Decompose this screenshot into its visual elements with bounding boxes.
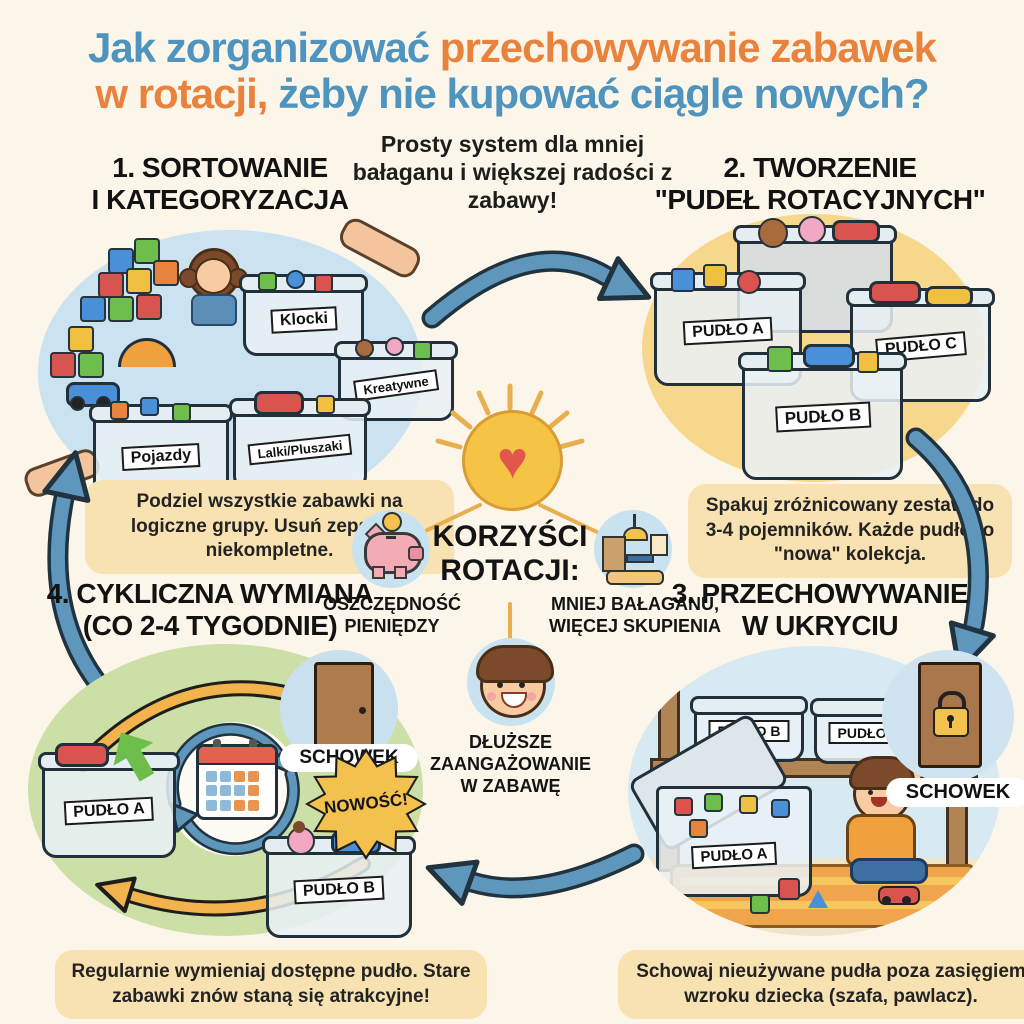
- calendar-cell: [248, 800, 259, 811]
- bin-label: Lalki/Pluszaki: [248, 434, 353, 466]
- cycle-bin-b: PUDŁO B: [266, 840, 412, 938]
- car-wheel-icon: [70, 396, 85, 411]
- bin-label: PUDŁO A: [64, 797, 155, 826]
- toy-block-icon: [286, 270, 305, 289]
- toy-block-icon: [737, 270, 761, 294]
- cheek-icon: [527, 692, 536, 701]
- step2-header-line2: "PUDEŁ ROTACYJNYCH": [645, 184, 995, 216]
- boy-legs-icon: [850, 858, 928, 884]
- new-badge-label: NOWOŚĆ!: [323, 790, 409, 819]
- benefit-label-engagement: DŁUŻSZE ZAANGAŻOWANIE W ZABAWĘ: [428, 732, 593, 798]
- teddy-icon: [758, 218, 788, 248]
- doll-icon: [385, 337, 404, 356]
- calendar-cell: [206, 785, 217, 796]
- title-part-orange2: w rotacji,: [95, 70, 267, 117]
- coin-slot-icon: [386, 536, 396, 539]
- cycle-bin-a: PUDŁO A: [42, 756, 176, 858]
- lamp-shade-icon: [623, 527, 648, 541]
- teddy-icon: [355, 339, 374, 358]
- step2-header: 2. TWORZENIE "PUDEŁ ROTACYJNYCH": [645, 152, 995, 217]
- toy-block-icon: [80, 296, 106, 322]
- toy-block-icon: [857, 351, 879, 373]
- bin-label: PUDŁO B: [293, 876, 384, 905]
- calendar-cell: [220, 771, 231, 782]
- calendar-cell: [220, 785, 231, 796]
- infographic-toy-rotation: Jak zorganizować przechowywanie zabawek …: [0, 0, 1024, 1024]
- toy-block-icon: [98, 272, 124, 298]
- toy-block-icon: [172, 403, 191, 422]
- girl-face-icon: [195, 258, 232, 294]
- toy-block-icon: [750, 894, 770, 914]
- arrow-step1-to-step2-icon: [420, 226, 650, 336]
- calendar-cell: [248, 771, 259, 782]
- toy-car-icon: [803, 344, 855, 368]
- toy-block-icon: [778, 878, 800, 900]
- bin-rim: [690, 696, 808, 715]
- toy-car-icon: [925, 286, 973, 307]
- page-title-line2: w rotacji, żeby nie kupować ciągle nowyc…: [0, 70, 1024, 118]
- padlock-icon: [933, 707, 969, 737]
- calendar-cell: [234, 800, 245, 811]
- toy-car-icon: [869, 281, 921, 304]
- step3-header: 3. PRZECHOWYWANIE W UKRYCIU: [645, 578, 995, 643]
- toy-block-icon: [314, 274, 333, 293]
- title-part-blue2: żeby nie kupować ciągle nowych?: [267, 70, 928, 117]
- rotation-bin-b: PUDŁO B: [742, 356, 903, 480]
- calendar-cell: [206, 771, 217, 782]
- eye-icon: [868, 790, 873, 795]
- step3-storage-door: [882, 650, 1014, 782]
- door-icon: [314, 662, 374, 756]
- picture-frame-icon: [650, 534, 668, 556]
- toy-block-icon: [110, 401, 129, 420]
- bin-label: Klocki: [270, 307, 337, 334]
- toy-block-icon: [674, 797, 693, 816]
- step2-header-line1: 2. TWORZENIE: [645, 152, 995, 184]
- keyhole-stem-icon: [949, 721, 952, 728]
- toy-block-icon: [704, 793, 723, 812]
- toy-block-icon: [739, 795, 758, 814]
- heart-icon: ♥: [497, 435, 528, 487]
- calendar-cell: [248, 785, 259, 796]
- toy-car-icon: [254, 391, 304, 415]
- step4-header: 4. CYKLICZNA WYMIANA (CO 2-4 TYGODNIE): [25, 578, 395, 643]
- piggy-bank-icon: [352, 510, 430, 588]
- calendar-cell: [220, 800, 231, 811]
- step1-header-line1: 1. SORTOWANIE: [70, 152, 370, 184]
- toy-triangle-icon: [808, 890, 828, 908]
- heart-badge: ♥: [462, 410, 563, 511]
- toy-block-icon: [771, 799, 790, 818]
- doll-hair-icon: [293, 821, 305, 833]
- calendar-grid: [206, 771, 268, 811]
- step4-caption: Regularnie wymieniaj dostępne pudło. Sta…: [55, 950, 487, 1019]
- toy-block-icon: [108, 296, 134, 322]
- bin-label: PUDŁO B: [775, 401, 871, 432]
- step1-header-line2: I KATEGORYZACJA: [70, 184, 370, 216]
- tidy-room-icon: [594, 510, 672, 588]
- lamp-cord-icon: [633, 514, 636, 527]
- toy-block-icon: [153, 260, 179, 286]
- toy-block-icon: [671, 268, 695, 292]
- toy-block-icon: [689, 819, 708, 838]
- step3-storage-label: SCHOWEK: [886, 778, 1024, 807]
- girl-dress-icon: [191, 294, 237, 326]
- step3-header-line2: W UKRYCIU: [645, 610, 995, 642]
- toy-block-icon: [136, 294, 162, 320]
- calendar-icon: [196, 744, 278, 820]
- calendar-cell: [234, 785, 245, 796]
- step4-header-line2: (CO 2-4 TYGODNIE): [25, 610, 395, 642]
- happy-child-icon: [467, 638, 555, 726]
- car-wheel-icon: [882, 896, 891, 905]
- doll-icon: [798, 216, 826, 244]
- toy-block-icon: [126, 268, 152, 294]
- step4-header-line1: 4. CYKLICZNA WYMIANA: [25, 578, 395, 610]
- toy-block-icon: [68, 326, 94, 352]
- pig-snout-icon: [408, 546, 424, 561]
- door-knob-icon: [359, 707, 366, 714]
- calendar-header: [199, 747, 275, 765]
- subtitle: Prosty system dla mniej bałaganu i więks…: [335, 130, 690, 214]
- door-icon: [918, 662, 982, 768]
- benefits-heading: KORZYŚCI ROTACJI:: [420, 520, 600, 587]
- toy-block-icon: [316, 395, 335, 414]
- coin-icon: [382, 512, 402, 532]
- category-bin-lalki: Lalki/Pluszaki: [233, 402, 367, 490]
- calendar-cell: [234, 771, 245, 782]
- step4-illustration: SCHOWEK PUDŁO A PUDŁO B NOWOŚĆ!: [28, 644, 423, 936]
- toy-block-icon: [50, 352, 76, 378]
- cheek-icon: [487, 692, 496, 701]
- pig-leg-icon: [394, 566, 407, 579]
- car-wheel-icon: [902, 896, 911, 905]
- shelf-icon: [602, 536, 626, 572]
- step3-caption: Schowaj nieużywane pudła poza zasięgiem …: [618, 950, 1024, 1019]
- arrow-step3-to-step4-icon: [418, 830, 648, 935]
- toy-block-icon: [78, 352, 104, 378]
- toy-block-icon: [140, 397, 159, 416]
- eye-icon: [519, 682, 525, 688]
- page-title-line1: Jak zorganizować przechowywanie zabawek: [0, 24, 1024, 72]
- eye-icon: [497, 682, 503, 688]
- bin-label: PUDŁO A: [691, 841, 777, 868]
- hand-icon: [335, 214, 424, 282]
- toy-arch-icon: [118, 338, 176, 367]
- toy-block-icon: [413, 341, 432, 360]
- toy-block-icon: [767, 346, 793, 372]
- toy-block-icon: [258, 272, 277, 291]
- toy-car-icon: [832, 220, 880, 243]
- toy-block-icon: [703, 264, 727, 288]
- bin-label: PUDŁO A: [683, 316, 774, 345]
- toy-car-icon: [55, 743, 109, 767]
- step1-header: 1. SORTOWANIE I KATEGORYZACJA: [70, 152, 370, 217]
- title-part-orange: przechowywanie zabawek: [440, 24, 936, 71]
- child-hair-icon: [476, 645, 554, 683]
- table-icon: [626, 554, 654, 563]
- calendar-cell: [206, 800, 217, 811]
- title-part-blue: Jak zorganizować: [88, 24, 440, 71]
- step3-header-line1: 3. PRZECHOWYWANIE: [645, 578, 995, 610]
